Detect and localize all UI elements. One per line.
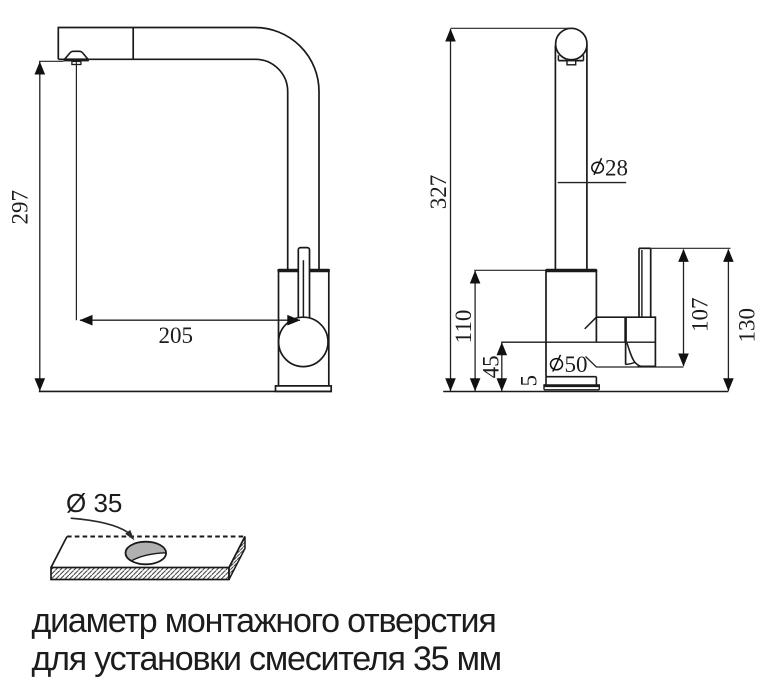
svg-text:110: 110 — [451, 310, 476, 344]
svg-text:28: 28 — [605, 155, 628, 180]
svg-text:Ø 35: Ø 35 — [66, 488, 122, 518]
svg-text:для установки смесителя 35 мм: для установки смесителя 35 мм — [32, 640, 501, 678]
svg-text:297: 297 — [8, 190, 33, 225]
svg-text:50: 50 — [565, 352, 588, 377]
svg-text:диаметр монтажного отверстия: диаметр монтажного отверстия — [32, 602, 496, 640]
svg-text:130: 130 — [735, 308, 760, 343]
svg-text:45: 45 — [479, 355, 504, 378]
svg-text:107: 107 — [688, 298, 713, 333]
svg-text:327: 327 — [426, 175, 451, 210]
svg-text:205: 205 — [158, 323, 193, 348]
svg-text:5: 5 — [517, 375, 542, 387]
